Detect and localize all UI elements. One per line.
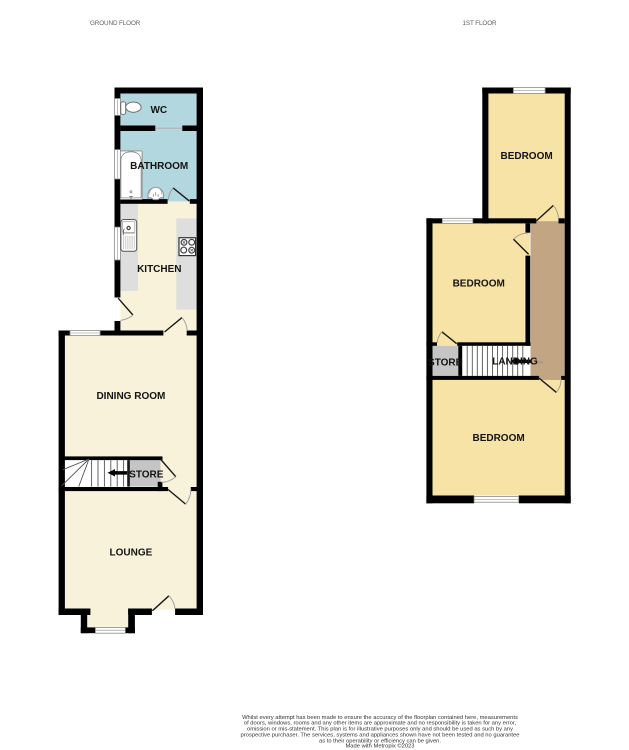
svg-text:DN: DN xyxy=(538,360,544,364)
svg-text:STORE: STORE xyxy=(129,469,164,480)
svg-text:Made with Metropix ©2023: Made with Metropix ©2023 xyxy=(345,743,414,750)
svg-text:BEDROOM: BEDROOM xyxy=(500,151,552,162)
svg-text:BEDROOM: BEDROOM xyxy=(453,278,505,289)
svg-text:BATHROOM: BATHROOM xyxy=(130,161,188,172)
svg-text:1ST FLOOR: 1ST FLOOR xyxy=(463,20,498,27)
svg-text:STORE: STORE xyxy=(428,357,463,368)
svg-text:BEDROOM: BEDROOM xyxy=(472,433,524,444)
svg-text:LOUNGE: LOUNGE xyxy=(110,547,153,558)
svg-text:WC: WC xyxy=(150,105,167,116)
svg-text:LANDING: LANDING xyxy=(492,356,538,367)
svg-text:DINING ROOM: DINING ROOM xyxy=(96,391,165,402)
svg-text:GROUND FLOOR: GROUND FLOOR xyxy=(90,20,141,27)
svg-text:KITCHEN: KITCHEN xyxy=(137,264,181,275)
